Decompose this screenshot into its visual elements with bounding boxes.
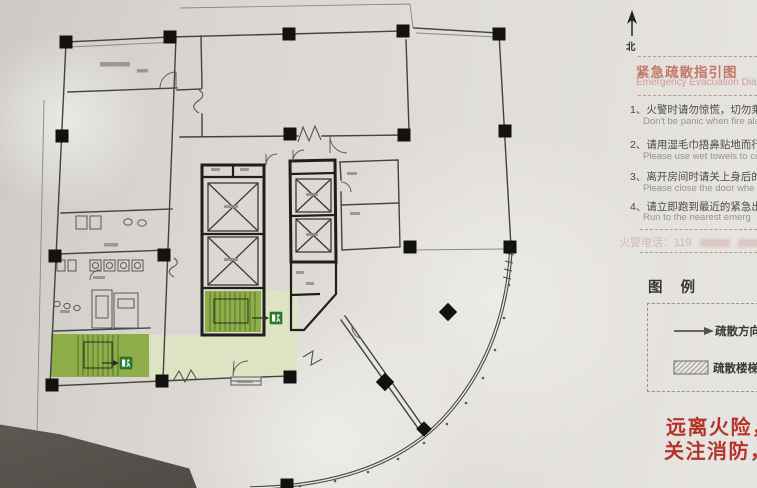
legend-stair-label: 疏散楼梯 [713, 360, 757, 376]
dashed-rule [640, 252, 757, 253]
dashed-rule [638, 95, 757, 96]
dashed-rule [638, 56, 757, 57]
slogan-line-2: 关注消防，排 [664, 435, 757, 464]
instruction-2-en: Please use wet towels to co [643, 151, 757, 162]
instruction-4-en: Run to the nearest emerg [643, 212, 751, 223]
legend-box: 疏散方向 疏散楼梯 [647, 303, 757, 392]
instruction-1-en: Don't be panic when fire alarm [643, 116, 757, 127]
instruction-3-cn: 3、离开房间时请关上身后的门 [630, 169, 757, 184]
legend-heading: 图 例 [648, 276, 702, 297]
dashed-rule [640, 229, 757, 230]
north-label: 北 [626, 41, 636, 53]
evacuation-sign-photo: { "colors": { "red_slogan": "#b5342a", "… [0, 0, 757, 488]
legend-direction-label: 疏散方向 [715, 323, 757, 339]
exit-sign [120, 357, 132, 369]
instruction-2-cn: 2、请用湿毛巾捂鼻贴地而行。 [630, 137, 757, 152]
evacuation-stair-icon [673, 360, 709, 375]
instruction-3-en: Please close the door whe [643, 183, 754, 194]
curtain-wall-mullions [299, 253, 514, 487]
fire-hotline: 火警电话：119 [619, 234, 757, 250]
southwest-evacuation-stair [51, 334, 149, 377]
north-arrow-icon: 北 [626, 10, 637, 53]
evacuation-direction-icon [674, 326, 714, 336]
exit-sign [270, 312, 282, 324]
instruction-1-cn: 1、火警时请勿惊慌，切勿乘搭电 [630, 102, 757, 117]
panel-title-en: Emergency Evacuation Dia [636, 77, 757, 88]
core-evacuation-stair [205, 291, 261, 332]
